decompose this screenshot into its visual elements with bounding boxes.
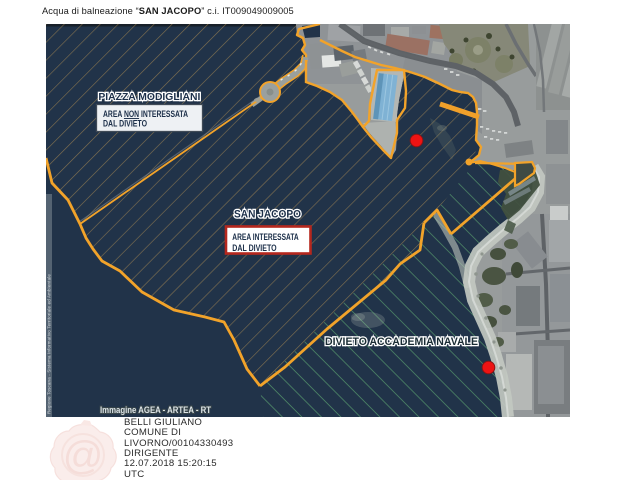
svg-text:Immagine AGEA - ARTEA - RT: Immagine AGEA - ARTEA - RT — [100, 405, 211, 415]
svg-text:@: @ — [63, 434, 104, 478]
svg-text:AREA INTERESSATA: AREA INTERESSATA — [232, 232, 298, 243]
svg-text:Regione Toscana - Sistema Info: Regione Toscana - Sistema Informativo Te… — [47, 274, 52, 414]
svg-text:SAN JACOPO: SAN JACOPO — [234, 209, 301, 221]
svg-text:DAL DIVIETO: DAL DIVIETO — [103, 119, 147, 130]
svg-text:PIAZZA MODIGLIANI: PIAZZA MODIGLIANI — [98, 91, 200, 103]
svg-text:DAL DIVIETO: DAL DIVIETO — [232, 243, 276, 254]
svg-text:DIVIETO ACCADEMIA NAVALE: DIVIETO ACCADEMIA NAVALE — [325, 336, 478, 348]
